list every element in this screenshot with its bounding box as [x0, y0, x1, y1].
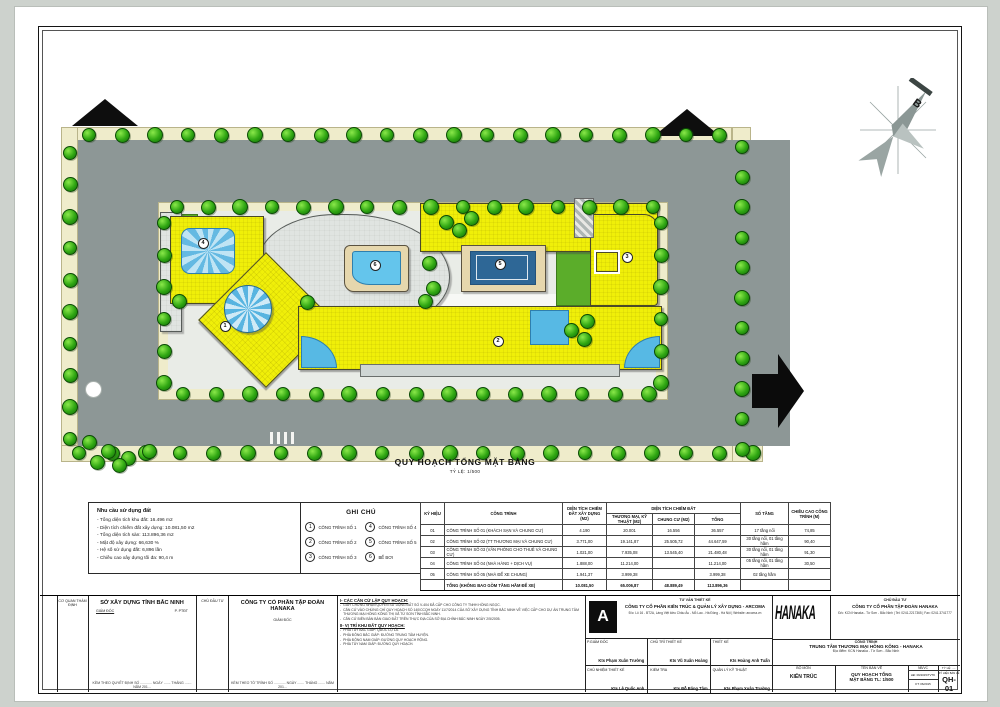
land-use-item-value: 10.081,50 m2: [165, 526, 194, 531]
tree-icon: [654, 216, 668, 230]
land-use-item-label: Hệ số sử dụng đất:: [100, 548, 141, 553]
signature-role-label: THIẾT KẾ: [713, 640, 729, 644]
site-table: KÝ HIỆUCÔNG TRÌNHDIỆN TÍCH CHIẾM ĐẤT XÂY…: [420, 502, 831, 591]
nbvc-2: KT: 06/2015: [908, 682, 938, 686]
land-use-item-value: 90,4 m: [159, 556, 174, 561]
table-total-cell: [421, 580, 445, 591]
agency-role-left: GIÁM ĐỐC: [96, 609, 114, 613]
title-block: CƠ QUAN THẨM ĐỊNH SỞ XÂY DỰNG TỈNH BẮC N…: [40, 595, 960, 692]
tree-icon: [176, 387, 190, 401]
investor-company: CÔNG TY CỔ PHẦN TẬP ĐOÀN HANAKA: [832, 604, 958, 609]
tree-icon: [157, 216, 171, 230]
tree-icon: [156, 375, 172, 391]
note-item: CĂN CỨ VÀO CHỨNG CHỈ QUY HOẠCH SỐ 140/CC…: [343, 608, 582, 617]
land-use-item: - Tổng diện tích sàn: 113.896,36 m2: [97, 532, 301, 540]
tree-icon: [452, 223, 467, 238]
note-row: -CĂN CỨ BIÊN BẢN BÀN GIAO ĐẤT TRÊN THỰC …: [340, 617, 582, 622]
table-total-cell: 10.081,50: [563, 580, 607, 591]
signature-cell: QUẢN LÝ KỸ THUẬTKts Phạm Xuân Trường: [710, 665, 773, 693]
column-header: DIỆN TÍCH CHIẾM ĐẤT: [607, 503, 741, 514]
signature-name: Kts Đỗ Băng Tâm: [673, 686, 707, 691]
table-cell: 3.999,38: [607, 569, 653, 580]
building-marker: 3: [622, 252, 633, 263]
table-row: 04CÔNG TRÌNH SỐ 04 (NHÀ HÀNG + DỊCH VỤ)1…: [421, 558, 831, 569]
tree-icon: [487, 200, 502, 215]
table-cell: 02 tầng hầm: [741, 569, 789, 580]
tree-icon: [157, 344, 172, 359]
table-cell: 04: [421, 558, 445, 569]
drawing-title: QUY HOẠCH TỔNG MẶT BẰNG: [330, 457, 600, 467]
land-use-item-value: 6,896 lần: [142, 548, 162, 553]
tree-icon: [423, 199, 439, 215]
building-marker: 6: [370, 260, 381, 271]
tree-icon: [157, 312, 171, 326]
tree-icon: [564, 323, 579, 338]
tree-icon: [644, 445, 660, 461]
tree-icon: [513, 128, 528, 143]
land-use-box: Nhu cầu sử dụng đất - Tổng diện tích khu…: [88, 502, 302, 574]
tree-icon: [112, 458, 127, 473]
tree-icon: [422, 256, 437, 271]
drawing-scale: TỶ LỆ: 1/500: [330, 469, 600, 474]
drawing-sheet: B 123456 QUY HOẠCH TỔNG MẶT BẰNG TỶ LỆ: …: [0, 0, 1000, 707]
tree-icon: [201, 200, 216, 215]
tree-icon: [735, 260, 750, 275]
legend-item: 2CÔNG TRÌNH SỐ 2: [305, 537, 356, 547]
column-subheader: CHUNG CƯ (M2): [653, 514, 695, 525]
table-total-cell: [789, 580, 831, 591]
tree-icon: [653, 375, 669, 391]
table-total-cell: 65.006,87: [607, 580, 653, 591]
table-cell: 25.505,72: [653, 536, 695, 547]
table-cell: 02: [421, 536, 445, 547]
consultant-label: TƯ VẤN THIẾT KẾ: [619, 598, 771, 602]
signature-role-label: CHỦ NHIỆM THIẾT KẾ: [587, 668, 624, 672]
agency-name: SỞ XÂY DỰNG TỈNH BẮC NINH: [88, 600, 196, 606]
column-header: SỐ TẦNG: [741, 503, 789, 525]
note-item: CĂN CỨ BIÊN BẢN BÀN GIAO ĐẤT TRÊN THỰC Đ…: [343, 617, 500, 622]
table-total-cell: 48.889,49: [653, 580, 695, 591]
land-use-item: - Hệ số sử dụng đất: 6,896 lần: [97, 547, 301, 555]
tree-icon: [611, 446, 626, 461]
table-header-row: KÝ HIỆUCÔNG TRÌNHDIỆN TÍCH CHIẾM ĐẤT XÂY…: [421, 503, 831, 514]
tree-icon: [309, 387, 324, 402]
tree-icon: [314, 128, 329, 143]
tree-icon: [209, 387, 224, 402]
signature-name: Kts Hoàng Anh Tuấn: [730, 658, 770, 663]
roundabout: [85, 381, 102, 398]
project-cell: CÔNG TRÌNH TRUNG TÂM THƯƠNG MẠI HỒNG KÔN…: [772, 639, 960, 665]
table-cell: CÔNG TRÌNH SỐ 05 (NHÀ ĐỂ XE CHUNG): [445, 569, 563, 580]
investor-block: HANAKA CHỦ ĐẦU TƯ CÔNG TY CỔ PHẦN TẬP ĐO…: [772, 596, 960, 692]
land-use-item-label: Tổng diện tích sàn:: [100, 533, 141, 538]
building-4-skylight: [181, 228, 235, 274]
tree-icon: [735, 442, 750, 457]
building-marker: 2: [493, 336, 504, 347]
arcoma-logo: A: [589, 601, 617, 633]
legend-column: 4CÔNG TRÌNH SỐ 45CÔNG TRÌNH SỐ 56BỂ BƠI: [365, 522, 416, 567]
agency-footer: KÈM THEO QUYẾT ĐỊNH SỐ ............ NGÀY…: [90, 681, 194, 689]
signature-role-label: P.GIÁM ĐỐC: [587, 640, 608, 644]
building-1-skylight: [224, 285, 272, 333]
site-table-wrap: KÝ HIỆUCÔNG TRÌNHDIỆN TÍCH CHIẾM ĐẤT XÂY…: [420, 502, 830, 588]
signature-role-label: CHỦ TRÌ THIẾT KẾ: [650, 640, 682, 644]
signature-name: Kts Lê Quốc Anh: [611, 686, 644, 691]
land-use-item: - Mật độ xây dựng: 66,630 %: [97, 540, 301, 548]
legend-item-label: BỂ BƠI: [378, 555, 393, 560]
tree-icon: [63, 146, 77, 160]
investor-footer: KÈM THEO TỜ TRÌNH SỐ ............ NGÀY .…: [230, 681, 335, 689]
table-cell: 1.941,37: [563, 569, 607, 580]
building-3-annex: [596, 252, 618, 272]
tree-icon: [242, 386, 258, 402]
tree-icon: [62, 304, 78, 320]
table-cell: 7.935,08: [607, 547, 653, 558]
tree-icon: [142, 444, 157, 459]
note-row: -CĂN CỨ VÀO CHỨNG CHỈ QUY HOẠCH SỐ 140/C…: [340, 608, 582, 617]
legend-item-number: 5: [365, 537, 375, 547]
tree-icon: [170, 200, 184, 214]
tree-icon: [446, 127, 462, 143]
column-header: KÝ HIỆU: [421, 503, 445, 525]
tree-icon: [439, 215, 454, 230]
tree-icon: [82, 435, 97, 450]
tree-icon: [426, 281, 441, 296]
drawing-no-cell: TỶ LỆ: ..... KÝ HIỆU BẢN VẼ QH-01: [938, 665, 960, 692]
table-cell: 20.001: [607, 525, 653, 536]
table-cell: 74,85: [789, 525, 831, 536]
site-plan: B 123456: [0, 0, 1000, 500]
signature-cell: CHỦ TRÌ THIẾT KẾKts Vũ Xuân Hoàng: [647, 638, 710, 665]
tree-icon: [580, 314, 595, 329]
investor-col-label: CHỦ ĐẦU TƯ: [198, 599, 227, 603]
tree-icon: [418, 294, 433, 309]
land-use-item-value: 66,630 %: [139, 541, 159, 546]
tree-icon: [654, 248, 669, 263]
tree-icon: [328, 199, 344, 215]
tree-icon: [214, 128, 229, 143]
legend-item-number: 4: [365, 522, 375, 532]
building-2-dock: [360, 364, 620, 377]
legend-item-label: CÔNG TRÌNH SỐ 5: [378, 540, 416, 545]
column-subheader: TỔNG: [695, 514, 741, 525]
tree-icon: [734, 290, 750, 306]
legend-item-number: 3: [305, 552, 315, 562]
tree-icon: [735, 412, 749, 426]
tree-icon: [413, 128, 428, 143]
tree-icon: [172, 294, 187, 309]
tree-icon: [90, 455, 105, 470]
tree-icon: [654, 344, 669, 359]
table-cell: CÔNG TRÌNH SỐ 01 (KHÁCH SẠN VÀ CHUNG CƯ): [445, 525, 563, 536]
investor-label: CHỦ ĐẦU TƯ: [832, 598, 958, 602]
signature-cell: THIẾT KẾKts Hoàng Anh Tuấn: [710, 638, 773, 665]
table-row: 03CÔNG TRÌNH SỐ 03 (VĂN PHÒNG CHO THUÊ V…: [421, 547, 831, 558]
table-cell: 13.545,40: [653, 547, 695, 558]
investor-address: Đ/c: KCN Hanaka - Từ Sơn - Bắc Ninh | Te…: [832, 611, 958, 615]
consultant-address: Đ/c: Lô 16 - BT2A, Làng Việt kiều Châu Â…: [619, 611, 771, 615]
ten-ban-ve-label: TÊN BẢN VẼ: [835, 666, 908, 670]
crosswalk: [270, 432, 298, 444]
legend-item-label: CÔNG TRÌNH SỐ 2: [318, 540, 356, 545]
nbvc-label: NB/VC: [908, 666, 938, 671]
investor-sign-company: CÔNG TY CỔ PHẦN TẬP ĐOÀN HANAKA: [228, 600, 337, 612]
tree-icon: [409, 387, 424, 402]
investor-sign-box: CÔNG TY CỔ PHẦN TẬP ĐOÀN HANAKA GIÁM ĐỐC…: [228, 596, 337, 692]
signature-name: Kts Phạm Xuân Trường: [598, 658, 644, 663]
table-cell: 44.647,59: [695, 536, 741, 547]
land-use-item-label: Chiều cao xây dựng tối đa:: [100, 556, 157, 561]
table-cell: 21.480,48: [695, 547, 741, 558]
tree-icon: [582, 200, 597, 215]
column-header: CÔNG TRÌNH: [445, 503, 563, 525]
ten-ban-ve-2: MẶT BẰNG TL: 1/500: [835, 677, 908, 682]
nbvc-cell: NB/VC HĐ: 09/2015/TVTK KT: 06/2015: [908, 665, 938, 692]
investor-sign-role: GIÁM ĐỐC: [228, 618, 337, 622]
land-use-item-label: Diện tích chiếm đất xây dựng:: [100, 526, 164, 531]
signature-role-label: QUẢN LÝ KỸ THUẬT: [713, 668, 747, 672]
legend-box: GHI CHÚ 1CÔNG TRÌNH SỐ 12CÔNG TRÌNH SỐ 2…: [300, 502, 422, 574]
table-cell: 30 tầng nổi, 01 tầng hầm: [741, 536, 789, 547]
tree-icon: [247, 127, 263, 143]
table-cell: 03: [421, 547, 445, 558]
tree-icon: [518, 199, 534, 215]
tree-icon: [464, 211, 479, 226]
note-item: PHÍA TÂY NAM GIÁP: ĐƯỜNG QUY HOẠCH.: [343, 642, 413, 647]
tree-icon: [63, 432, 77, 446]
table-cell: 11.214,00: [607, 558, 653, 569]
column-header: CHIỀU CAO CÔNG TRÌNH (M): [789, 503, 831, 525]
table-cell: CÔNG TRÌNH SỐ 03 (VĂN PHÒNG CHO THUÊ VÀ …: [445, 547, 563, 558]
building-marker: 1: [220, 321, 231, 332]
tree-icon: [240, 445, 256, 461]
bo-mon-cell: BỘ MÔN KIẾN TRÚC: [772, 665, 835, 692]
north-compass-icon: B: [852, 78, 944, 180]
table-cell: 30 tầng nổi, 01 tầng hầm: [741, 547, 789, 558]
signature-name: Kts Phạm Xuân Trường: [724, 686, 770, 691]
building-2: [298, 306, 662, 370]
tree-icon: [735, 351, 750, 366]
legend-column: 1CÔNG TRÌNH SỐ 12CÔNG TRÌNH SỐ 23CÔNG TR…: [305, 522, 356, 567]
tree-icon: [62, 209, 78, 225]
tree-icon: [653, 279, 669, 295]
table-cell: 3.771,00: [563, 536, 607, 547]
table-cell: CÔNG TRÌNH SỐ 02 (TT THƯƠNG MẠI VÀ CHUNG…: [445, 536, 563, 547]
tree-icon: [608, 387, 623, 402]
table-cell: 3.999,38: [695, 569, 741, 580]
legend-item-label: CÔNG TRÌNH SỐ 3: [318, 555, 356, 560]
agency-role-right: P. PTĐT: [175, 609, 188, 613]
table-total-cell: [741, 580, 789, 591]
land-use-item: - Diện tích chiếm đất xây dựng: 10.081,5…: [97, 525, 301, 533]
note-dash: -: [340, 617, 341, 622]
signature-cell: P.GIÁM ĐỐCKts Phạm Xuân Trường: [585, 638, 647, 665]
table-cell: 1.888,00: [563, 558, 607, 569]
tree-icon: [712, 128, 727, 143]
table-cell: 91,30: [789, 547, 831, 558]
table-cell: 01: [421, 525, 445, 536]
note-dash: -: [340, 642, 341, 647]
tree-icon: [679, 128, 693, 142]
tree-icon: [712, 446, 727, 461]
tree-icon: [734, 381, 750, 397]
table-row: 01CÔNG TRÌNH SỐ 01 (KHÁCH SẠN VÀ CHUNG C…: [421, 525, 831, 536]
tree-icon: [156, 279, 172, 295]
notes-section: I- CÁC CĂN CỨ LẬP QUY HOẠCH: -GIẤY CHỨNG…: [340, 598, 582, 690]
legend-item: 5CÔNG TRÌNH SỐ 5: [365, 537, 416, 547]
table-cell: 1.021,00: [563, 547, 607, 558]
signature-role-label: KIỂM TRA: [650, 668, 667, 672]
legend-title: GHI CHÚ: [301, 509, 421, 516]
legend-item-number: 6: [365, 552, 375, 562]
legend-item-label: CÔNG TRÌNH SỐ 1: [318, 525, 356, 530]
table-cell: 17 tầng nổi: [741, 525, 789, 536]
bo-mon-label: BỘ MÔN: [772, 666, 835, 670]
nbvc-1: HĐ: 09/2015/TVTK: [908, 673, 938, 680]
tree-icon: [476, 387, 490, 401]
tree-icon: [508, 387, 523, 402]
legend-item-number: 1: [305, 522, 315, 532]
table-cell: 36.557: [695, 525, 741, 536]
tree-icon: [281, 128, 295, 142]
legend-item: 4CÔNG TRÌNH SỐ 4: [365, 522, 416, 532]
table-cell: 90,40: [789, 536, 831, 547]
table-cell: 16.556: [653, 525, 695, 536]
tree-icon: [63, 273, 78, 288]
tree-icon: [480, 128, 494, 142]
tree-icon: [612, 128, 627, 143]
table-cell: 11.214,00: [695, 558, 741, 569]
table-cell: 4.190: [563, 525, 607, 536]
table-cell: CÔNG TRÌNH SỐ 04 (NHÀ HÀNG + DỊCH VỤ): [445, 558, 563, 569]
signature-name: Kts Vũ Xuân Hoàng: [670, 658, 708, 663]
land-use-item-value: 113.896,36 m2: [142, 533, 174, 538]
tree-icon: [63, 177, 78, 192]
legend-item: 6BỂ BƠI: [365, 552, 416, 562]
building-2-skylight: [530, 310, 569, 345]
tree-icon: [173, 446, 187, 460]
table-cell: 05 tầng nổi, 01 tầng hầm: [741, 558, 789, 569]
tree-icon: [157, 248, 172, 263]
table-row: 02CÔNG TRÌNH SỐ 02 (TT THƯƠNG MẠI VÀ CHU…: [421, 536, 831, 547]
note-row: -PHÍA TÂY NAM GIÁP: ĐƯỜNG QUY HOẠCH.: [340, 642, 582, 647]
tree-icon: [376, 387, 390, 401]
signature-cell: KIỂM TRAKts Đỗ Băng Tâm: [647, 665, 710, 693]
column-header: DIỆN TÍCH CHIẾM ĐẤT XÂY DỰNG (M2): [563, 503, 607, 525]
tree-icon: [735, 140, 749, 154]
project-address: Địa điểm: KCN Hanaka - Từ Sơn - Bắc Ninh: [772, 649, 960, 653]
column-subheader: THƯƠNG MẠI, KỸ THUẬT (M2): [607, 514, 653, 525]
tree-icon: [645, 127, 661, 143]
tree-icon: [551, 200, 565, 214]
table-cell: [653, 558, 695, 569]
tree-icon: [296, 200, 311, 215]
tree-icon: [63, 368, 78, 383]
legend-item: 1CÔNG TRÌNH SỐ 1: [305, 522, 356, 532]
table-total-cell: 113.896,36: [695, 580, 741, 591]
agency-box: SỞ XÂY DỰNG TỈNH BẮC NINH GIÁM ĐỐC P. PT…: [88, 596, 196, 692]
building-marker: 4: [198, 238, 209, 249]
agency-col-label: CƠ QUAN THẨM ĐỊNH: [58, 599, 87, 607]
tree-icon: [646, 200, 660, 214]
table-row: 05CÔNG TRÌNH SỐ 05 (NHÀ ĐỂ XE CHUNG)1.94…: [421, 569, 831, 580]
table-cell: 19.141,87: [607, 536, 653, 547]
land-use-item: - Chiều cao xây dựng tối đa: 90,4 m: [97, 555, 301, 563]
tree-icon: [63, 337, 77, 351]
tree-icon: [206, 446, 221, 461]
legend-item: 3CÔNG TRÌNH SỐ 3: [305, 552, 356, 562]
table-total-row: TỔNG (KHÔNG BAO GỒM TẦNG HẦM ĐỂ XE)10.08…: [421, 580, 831, 591]
tree-icon: [392, 200, 407, 215]
legend-item-label: CÔNG TRÌNH SỐ 4: [378, 525, 416, 530]
note-dash: -: [340, 608, 341, 617]
tree-icon: [307, 446, 322, 461]
land-use-item-value: 16.496 m2: [150, 518, 173, 523]
tree-icon: [115, 128, 130, 143]
building-marker: 5: [495, 259, 506, 270]
tree-icon: [735, 231, 749, 245]
land-use-title: Nhu cầu sử dụng đất: [97, 508, 301, 514]
consultant-block: A TƯ VẤN THIẾT KẾ CÔNG TY CỔ PHẦN KIẾN T…: [585, 596, 772, 692]
table-cell: 30,50: [789, 558, 831, 569]
drawing-number: QH-01: [938, 675, 960, 693]
table-cell: [789, 569, 831, 580]
tree-icon: [300, 295, 315, 310]
consultant-company: CÔNG TY CỔ PHẦN KIẾN TRÚC & QUẢN LÝ XÂY …: [619, 604, 771, 609]
direction-arrow: [748, 348, 808, 434]
tree-icon: [654, 312, 668, 326]
ty-le-label: TỶ LỆ: .....: [938, 666, 960, 671]
tree-icon: [276, 387, 290, 401]
table-total-cell: TỔNG (KHÔNG BAO GỒM TẦNG HẦM ĐỂ XE): [445, 580, 563, 591]
table-cell: 05: [421, 569, 445, 580]
land-use-item-label: Tổng diện tích khu đất:: [100, 518, 149, 523]
gate-roof-left: [72, 99, 138, 126]
ten-ban-ve-cell: TÊN BẢN VẼ QUY HOẠCH TỔNG MẶT BẰNG TL: 1…: [835, 665, 908, 692]
tree-icon: [577, 332, 592, 347]
table-cell: [653, 569, 695, 580]
signature-cell: CHỦ NHIỆM THIẾT KẾKts Lê Quốc Anh: [585, 665, 647, 693]
tree-icon: [679, 446, 693, 460]
tree-icon: [82, 128, 96, 142]
land-use-item-label: Mật độ xây dựng:: [100, 541, 137, 546]
land-use-item: - Tổng diện tích khu đất: 16.496 m2: [97, 517, 301, 525]
tree-icon: [735, 170, 750, 185]
bo-mon-value: KIẾN TRÚC: [772, 674, 835, 680]
legend-item-number: 2: [305, 537, 315, 547]
